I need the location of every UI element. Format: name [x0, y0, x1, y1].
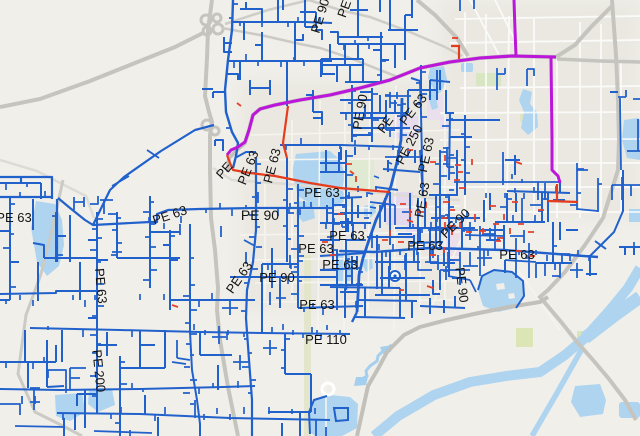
svg-text:PE 63: PE 63 — [92, 268, 110, 305]
svg-text:PE 63: PE 63 — [499, 247, 534, 262]
svg-text:PE 63: PE 63 — [0, 210, 32, 225]
svg-text:PE 63: PE 63 — [329, 228, 364, 243]
svg-text:PE 63: PE 63 — [299, 297, 334, 312]
svg-text:PE 90: PE 90 — [259, 270, 294, 285]
svg-text:PE 63: PE 63 — [322, 257, 357, 272]
svg-text:PE 90: PE 90 — [241, 207, 279, 223]
svg-text:PE 110: PE 110 — [305, 332, 347, 347]
svg-text:PE 63: PE 63 — [407, 238, 442, 253]
svg-text:PE 63: PE 63 — [304, 185, 339, 200]
svg-text:PE 63: PE 63 — [298, 241, 333, 256]
